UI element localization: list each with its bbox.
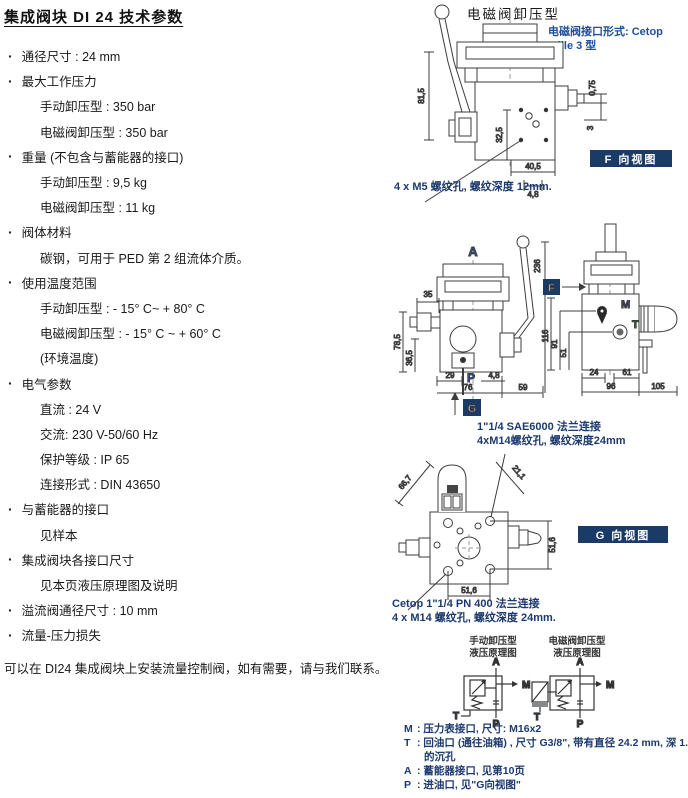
drawing2-caption: 1"1/4 SAE6000 法兰连接 4xM14螺纹孔, 螺纹深度24mm	[477, 420, 626, 448]
spec-item: 最大工作压力	[4, 68, 364, 93]
dim-35: 35	[424, 290, 433, 299]
dim-61: 61	[623, 368, 632, 377]
dim-211: 21,1	[510, 464, 527, 482]
left-view-coil	[410, 313, 440, 331]
coil-connector-outline	[555, 86, 584, 110]
dim-29: 29	[446, 371, 455, 380]
spec-item: 直流 : 24 V	[4, 396, 364, 421]
schematic-port-a: A	[576, 657, 583, 668]
dim-48b: 4,8	[488, 371, 500, 380]
drawing1-caption: 4 x M5 螺纹孔, 螺纹深度 12mm.	[394, 180, 552, 194]
legend-row-t2: 的沉孔	[404, 750, 686, 764]
right-view-solenoid	[584, 224, 639, 294]
legend-row-t: T : 回油口 (通往油箱) , 尺寸 G3/8", 带有直径 24.2 mm,…	[404, 736, 686, 750]
spec-item: 见本页液压原理图及说明	[4, 572, 364, 597]
dim-365: 36,5	[405, 350, 414, 366]
spec-item: 电气参数	[4, 370, 364, 395]
spec-item: (环境温度)	[4, 345, 364, 370]
view-g-arrow-label: G	[468, 403, 477, 415]
spec-item: 电磁阀卸压型 : - 15° C ~ + 60° C	[4, 320, 364, 345]
dim-96: 96	[607, 382, 616, 391]
view-f-badge: F 向视图	[590, 150, 672, 167]
spec-item: 手动卸压型 : 9,5 kg	[4, 169, 364, 194]
port-a-label: A	[468, 244, 478, 259]
relief-valve-protrusion	[399, 538, 430, 557]
dim-516-bottom: 51,6	[461, 586, 477, 595]
schematic-manual-relief: A M T P	[452, 656, 534, 728]
legend-row-a: A : 蓄能器接口, 见第10页	[404, 764, 686, 778]
dim-236: 236	[533, 259, 542, 273]
spec-item: 碳钢，可用于 PED 第 2 组流体介质。	[4, 245, 364, 270]
spec-item: 保护等级 : IP 65	[4, 446, 364, 471]
spec-item: 连接形式 : DIN 43650	[4, 471, 364, 496]
spec-column: 集成阀块 DI 24 技术参数 通径尺寸 : 24 mm 最大工作压力 手动卸压…	[4, 6, 364, 689]
spec-item: 与蓄能器的接口	[4, 496, 364, 521]
solenoid-valve-outline	[457, 24, 563, 82]
spec-item: 见样本	[4, 522, 364, 547]
spec-item: 交流: 230 V-50/60 Hz	[4, 421, 364, 446]
legend-row-p: P : 进油口, 见"G向视图"	[404, 778, 686, 792]
dim-51: 51	[559, 348, 568, 357]
legend-row-m: M : 压力表接口, 尺寸: M16x2	[404, 722, 686, 736]
port-legend: M : 压力表接口, 尺寸: M16x2 T : 回油口 (通往油箱) , 尺寸…	[404, 722, 686, 792]
spec-item: 阀体材料	[4, 219, 364, 244]
port-t-label: T	[632, 319, 639, 331]
schematic-port-m: M	[606, 680, 614, 691]
port-m-label: M	[621, 299, 630, 311]
spec-item: 通径尺寸 : 24 mm	[4, 43, 364, 68]
spec-item: 流量-压力损失	[4, 622, 364, 647]
spec-item: 电磁阀卸压型 : 11 kg	[4, 194, 364, 219]
spec-item: 电磁阀卸压型 : 350 bar	[4, 119, 364, 144]
spec-item: 集成阀块各接口尺寸	[4, 547, 364, 572]
spec-item: 溢流阀通径尺寸 : 10 mm	[4, 597, 364, 622]
view-g-badge: G 向视图	[578, 526, 668, 543]
datasheet-page: 集成阀块 DI 24 技术参数 通径尺寸 : 24 mm 最大工作压力 手动卸压…	[0, 0, 688, 798]
dim-91: 91	[550, 339, 559, 348]
view-f-arrow-label: F	[548, 283, 555, 295]
spec-item: 重量 (不包含与蓄能器的接口)	[4, 144, 364, 169]
spec-list: 通径尺寸 : 24 mm 最大工作压力 手动卸压型 : 350 bar 电磁阀卸…	[4, 43, 364, 648]
spec-item: 使用温度范围	[4, 270, 364, 295]
page-title: 集成阀块 DI 24 技术参数	[4, 6, 364, 27]
schematic-solenoid-relief: A M T P	[528, 656, 620, 728]
schematic-port-a: A	[492, 657, 499, 668]
dim-59: 59	[519, 383, 528, 392]
schematic-port-t: T	[453, 711, 459, 722]
flange-port-protrusion	[508, 526, 541, 548]
right-view-coil	[639, 306, 677, 373]
drawing3-caption: Cetop 1"1/4 PN 400 法兰连接 4 x M14 螺纹孔, 螺纹深…	[392, 597, 556, 625]
dim-116: 116	[541, 329, 550, 342]
spec-item: 手动卸压型 : - 15° C~ + 80° C	[4, 295, 364, 320]
dim-516-side: 51,6	[548, 537, 557, 553]
spec-item: 手动卸压型 : 350 bar	[4, 93, 364, 118]
dim-24: 24	[590, 368, 599, 377]
dim-075: 0,75	[588, 80, 597, 96]
dim-785: 78,5	[393, 334, 402, 350]
drawing2-views: A 35 78,5 36,5	[393, 218, 688, 418]
dim-405: 40,5	[525, 162, 541, 171]
dim-325: 32,5	[495, 127, 504, 143]
dim-815: 81,5	[417, 88, 426, 104]
dim-3: 3	[586, 125, 595, 130]
footer-note: 可以在 DI24 集成阀块上安装流量控制阀，如有需要，请与我们联系。	[4, 658, 364, 677]
dim-105: 105	[651, 382, 665, 391]
valve-block-outline	[475, 82, 555, 160]
dim-76: 76	[464, 383, 473, 392]
